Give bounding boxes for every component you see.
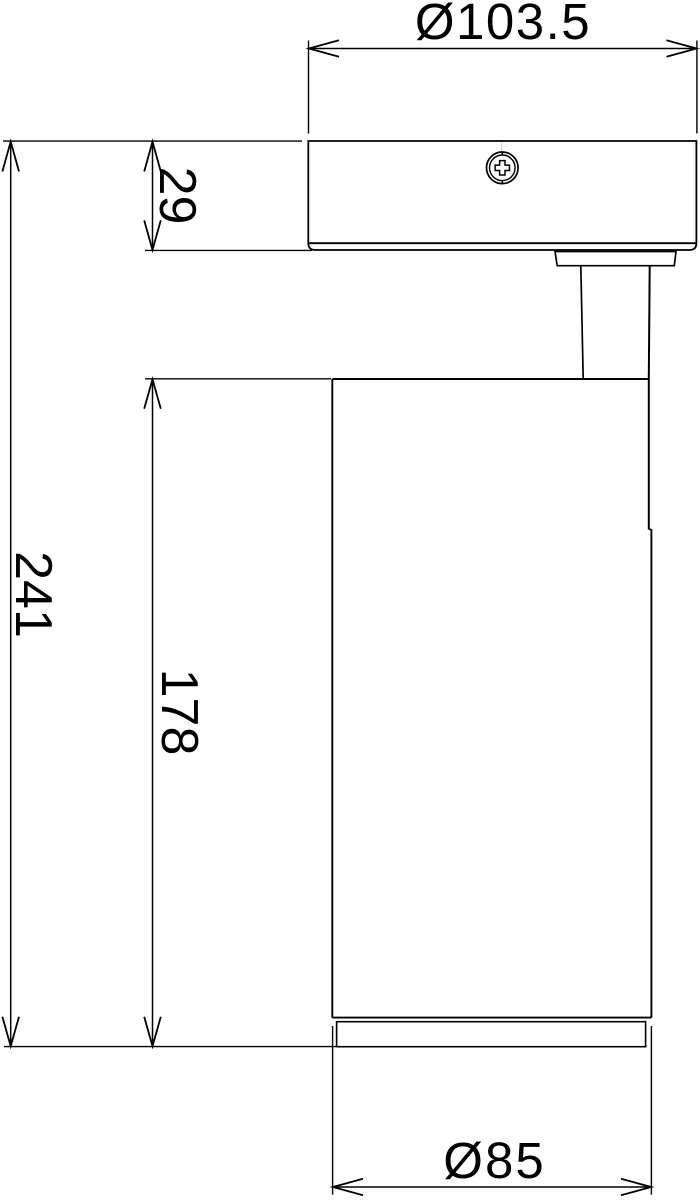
svg-text:29: 29: [148, 167, 206, 225]
svg-text:178: 178: [150, 669, 208, 756]
svg-text:241: 241: [4, 551, 62, 638]
svg-text:Ø103.5: Ø103.5: [415, 0, 591, 50]
svg-text:Ø85: Ø85: [443, 1132, 545, 1189]
